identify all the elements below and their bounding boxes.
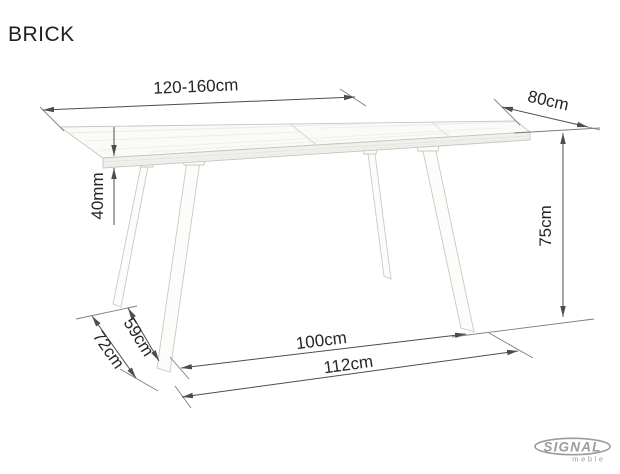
table-legs [113, 142, 474, 372]
dim-outer-width-label: 112cm [322, 352, 374, 378]
extension-line [170, 357, 189, 379]
page-title: BRICK [8, 23, 75, 46]
dim-height-label: 75cm [536, 205, 555, 247]
leg-front-left [157, 154, 201, 372]
leg-front-right [421, 142, 474, 332]
extension-line [120, 369, 158, 391]
dim-outer-depth-label: 72cm [89, 327, 128, 372]
dim-length-line [43, 97, 355, 110]
logo-sub-text: meble [572, 455, 605, 464]
dim-inner-depth-label: 59cm [120, 314, 158, 359]
extension-line [40, 107, 64, 131]
leg-back-left [113, 156, 150, 307]
brand-logo: SIGNAL meble [535, 438, 610, 463]
dim-depth-label: 80cm [526, 87, 571, 115]
dimension-labels: 120-160cm 80cm 40mm 75cm 59cm 72cm 100cm… [88, 75, 571, 377]
logo-brand-text: SIGNAL [543, 440, 601, 455]
table-top [60, 121, 530, 168]
product-dimension-sheet: BRICK [0, 0, 620, 474]
dim-thickness-label: 40mm [88, 172, 107, 219]
table-diagram: BRICK [0, 0, 620, 474]
leg-back-right [367, 146, 391, 279]
dim-length-label: 120-160cm [153, 75, 239, 98]
extension-line [76, 306, 137, 319]
